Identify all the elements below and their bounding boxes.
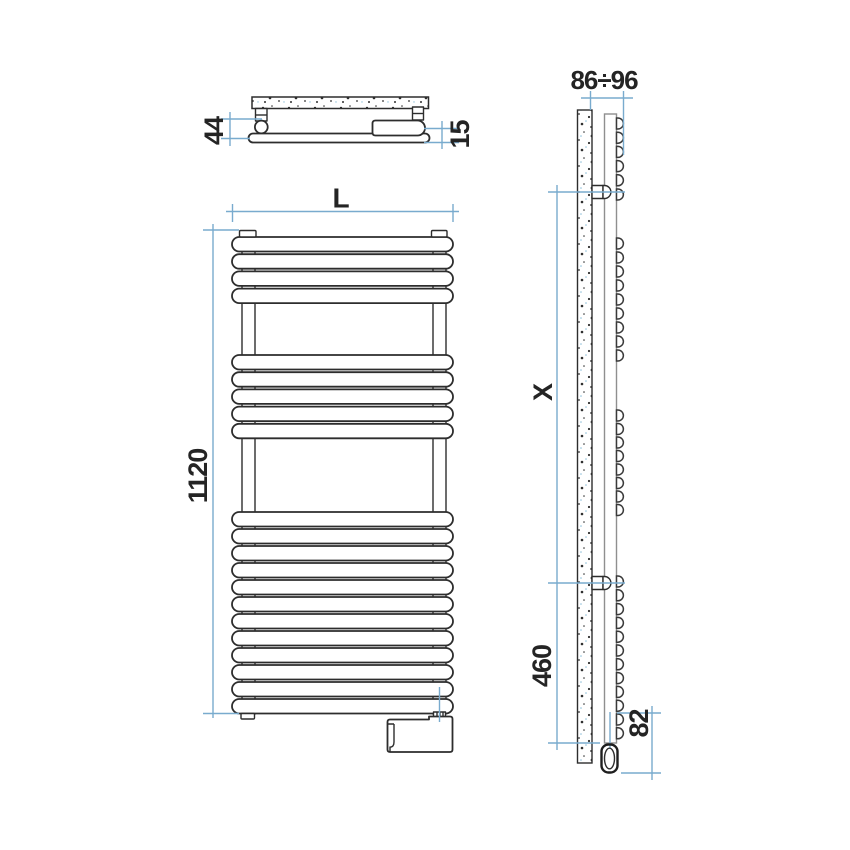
bar-end-profile — [617, 336, 624, 347]
towel-bar — [232, 271, 453, 286]
bar-end-profile — [617, 645, 624, 656]
wall-bar-section — [252, 97, 429, 109]
towel-bar — [232, 372, 453, 387]
dim-bracket-span-label: X — [528, 383, 558, 401]
wall-section — [578, 110, 593, 763]
dim-element-offset-label: 82 — [624, 709, 654, 737]
bar-end-profile — [617, 631, 624, 642]
bar-end-profile — [617, 280, 624, 291]
bar-end-profile — [617, 132, 624, 143]
electric-element-side — [602, 745, 618, 773]
bar-end-profile — [617, 673, 624, 684]
bar-end-profile — [617, 451, 624, 462]
bar-end-profile — [617, 350, 624, 361]
bar-end-profile — [617, 118, 624, 129]
bar-end-profile — [617, 266, 624, 277]
bar-end-profiles — [617, 118, 624, 739]
dimension-width: L — [226, 183, 459, 223]
towel-bar — [232, 631, 453, 646]
bar-end-profile — [617, 294, 624, 305]
towel-bar — [232, 563, 453, 578]
bar-end-profile — [617, 252, 624, 263]
electric-element-box — [388, 717, 453, 753]
front-view: L 1120 — [183, 183, 459, 753]
towel-bar — [232, 407, 453, 422]
bar-end-profile — [617, 308, 624, 319]
bar-end-profile — [617, 686, 624, 697]
towel-bar — [232, 512, 453, 527]
bar-end-profile — [617, 714, 624, 725]
bar-end-profile — [617, 478, 624, 489]
towel-bars — [232, 237, 453, 714]
bottom-plug-left — [241, 714, 255, 720]
towel-bar — [232, 237, 453, 252]
bar-end-profile — [617, 617, 624, 628]
towel-bar — [232, 289, 453, 304]
bar-end-profile — [617, 189, 624, 200]
towel-bar — [232, 546, 453, 561]
bar-end-profile — [617, 238, 624, 249]
bar-end-profile — [617, 410, 624, 421]
top-view: 44 15 — [199, 97, 475, 149]
bar-end-profile — [617, 505, 624, 516]
element-housing-top-view — [373, 121, 426, 136]
bar-end-profile — [617, 146, 624, 157]
towel-bar — [232, 529, 453, 544]
dim-wall-distance-label: 86÷96 — [570, 65, 638, 95]
towel-bar — [232, 665, 453, 680]
dim-depth-label: 44 — [199, 116, 229, 145]
towel-bar — [232, 682, 453, 697]
towel-bar — [232, 597, 453, 612]
top-plug-right — [432, 231, 448, 238]
bar-end-profile — [617, 322, 624, 333]
bar-end-profile — [617, 437, 624, 448]
collector-tube-side — [605, 114, 617, 743]
towel-bar — [232, 648, 453, 663]
dimension-element-offset: 82 — [617, 706, 661, 780]
right-bracket-top-view — [413, 107, 424, 120]
bracket-roller — [255, 121, 268, 134]
bar-end-profile — [617, 659, 624, 670]
towel-bar — [232, 254, 453, 269]
technical-drawing-page: 44 15 — [0, 0, 850, 850]
bar-end-profile — [617, 728, 624, 739]
bar-end-profile — [617, 576, 624, 587]
side-view: 86÷96 X 460 82 — [527, 65, 661, 780]
towel-bar — [232, 699, 453, 714]
dim-lower-span-label: 460 — [527, 645, 557, 687]
bar-end-profile — [617, 464, 624, 475]
dim-height-label: 1120 — [183, 449, 213, 504]
bar-end-profile — [617, 175, 624, 186]
dim-profile-label: 15 — [445, 120, 475, 149]
bar-end-profile — [617, 604, 624, 615]
dimension-profile: 15 — [424, 120, 475, 149]
towel-bar — [232, 355, 453, 370]
towel-bar — [232, 424, 453, 439]
bar-end-profile — [617, 161, 624, 172]
left-bracket-top-view — [255, 109, 268, 134]
dim-width-label: L — [332, 183, 349, 214]
radiator-dimension-drawing: 44 15 — [0, 0, 850, 850]
top-plug-left — [240, 231, 257, 238]
bar-end-profile — [617, 590, 624, 601]
towel-bar — [232, 389, 453, 404]
bar-end-profile — [617, 700, 624, 711]
dimension-height: 1120 — [183, 224, 239, 718]
towel-bar — [232, 614, 453, 629]
bar-end-profile — [617, 424, 624, 435]
bar-end-profile — [617, 491, 624, 502]
towel-bar — [232, 580, 453, 595]
